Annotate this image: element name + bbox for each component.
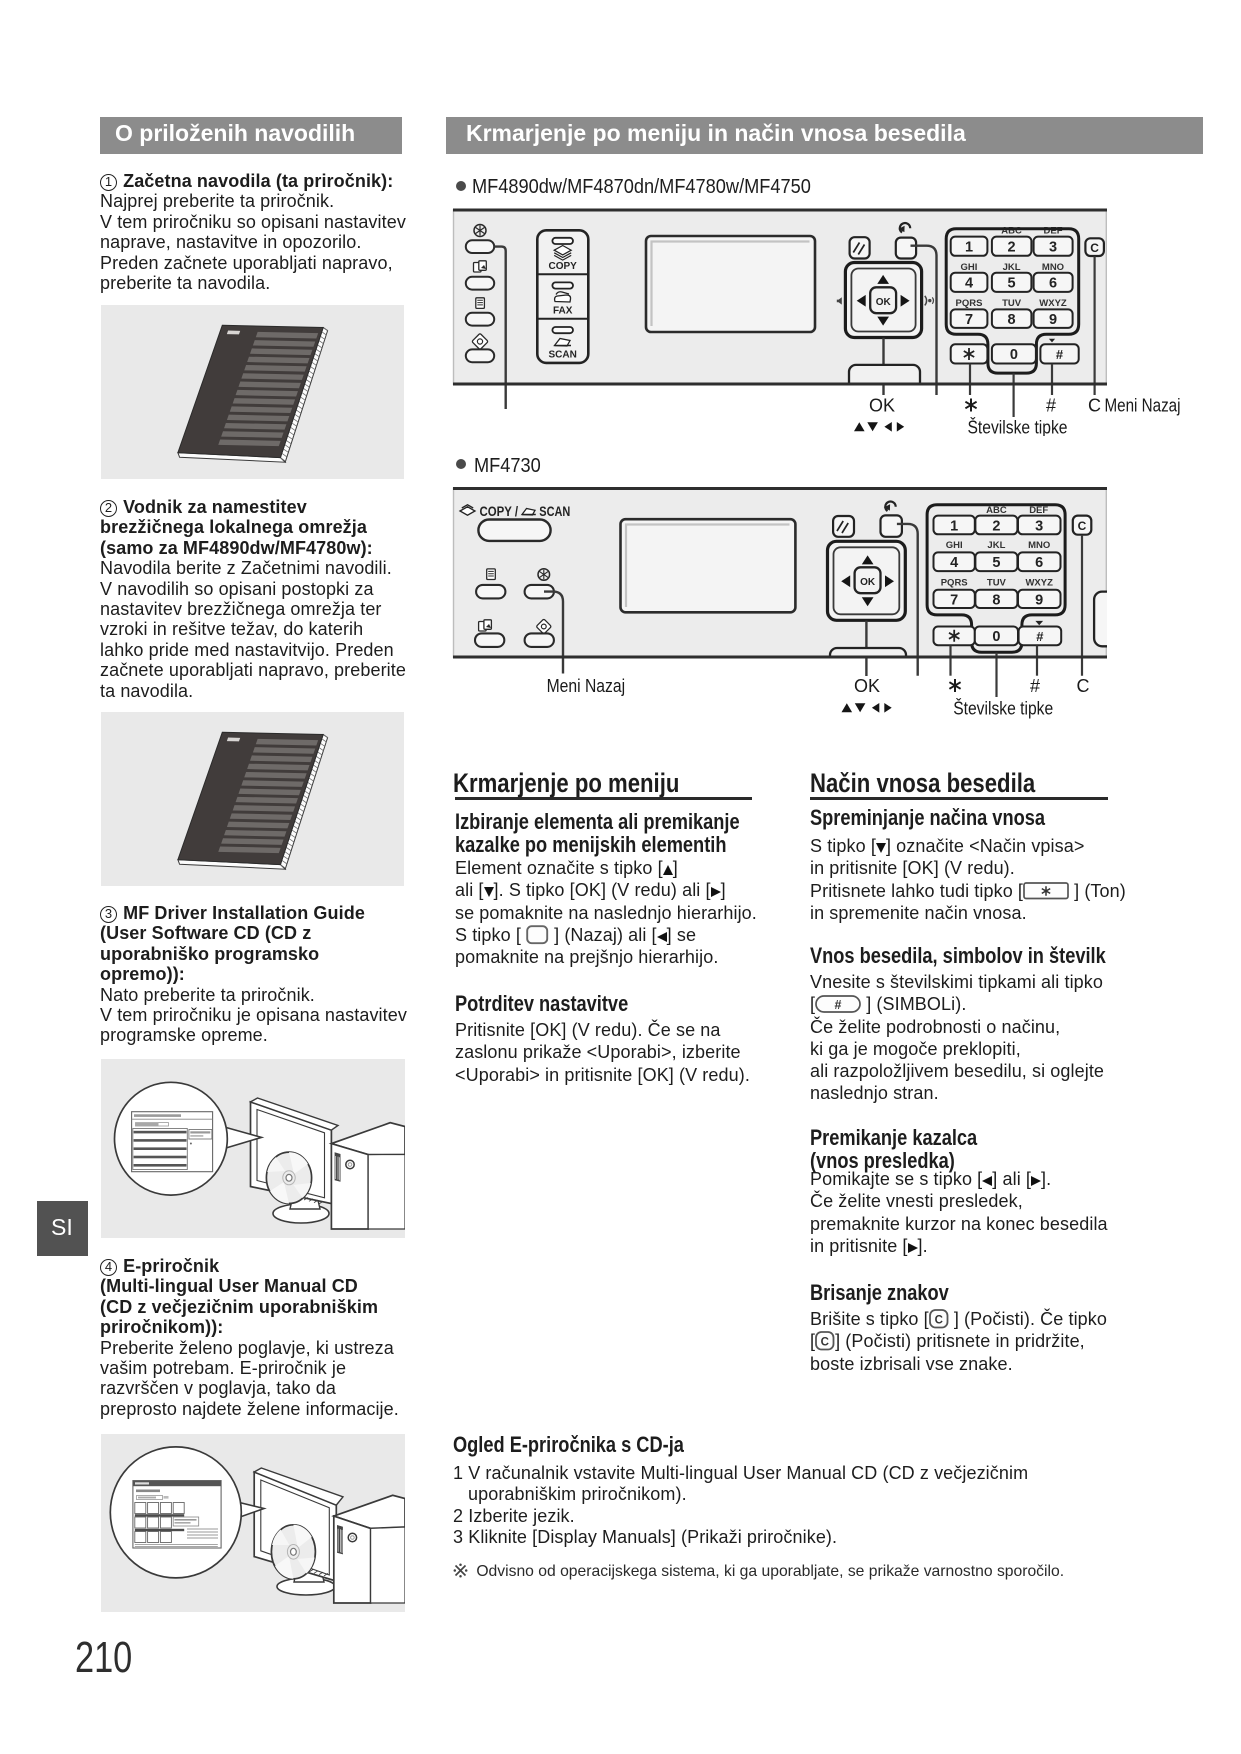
svg-text:Številske tipke: Številske tipke	[953, 698, 1053, 719]
svg-text:SCAN: SCAN	[539, 504, 570, 519]
svg-text:#: #	[1030, 676, 1040, 696]
svg-text:8: 8	[1008, 312, 1016, 328]
svg-text:6: 6	[1035, 555, 1043, 571]
svg-text:DEF: DEF	[1029, 505, 1048, 516]
svg-text:2: 2	[992, 518, 1000, 534]
svg-text:Meni Nazaj: Meni Nazaj	[1105, 396, 1181, 416]
svg-text:SCAN: SCAN	[549, 350, 577, 361]
svg-text:7: 7	[965, 312, 973, 328]
svg-text:#: #	[1056, 347, 1064, 362]
svg-text:6: 6	[1049, 276, 1057, 292]
svg-text:C: C	[1090, 241, 1099, 255]
svg-text:WXYZ: WXYZ	[1025, 577, 1053, 588]
svg-text:C: C	[1088, 396, 1101, 416]
svg-text:TUV: TUV	[1002, 298, 1022, 309]
svg-text:WXYZ: WXYZ	[1039, 298, 1067, 309]
svg-text:0: 0	[1010, 347, 1018, 363]
svg-text:OK: OK	[869, 396, 895, 416]
svg-text:5: 5	[992, 555, 1000, 571]
svg-text:OK: OK	[854, 676, 880, 696]
svg-text:COPY: COPY	[549, 261, 578, 272]
svg-text:Meni Nazaj: Meni Nazaj	[547, 676, 626, 696]
svg-text:PQRS: PQRS	[956, 298, 983, 309]
svg-text:FAX: FAX	[553, 305, 573, 316]
svg-text:4: 4	[965, 276, 973, 292]
svg-text:3: 3	[1035, 518, 1043, 534]
svg-text:#: #	[1046, 396, 1056, 416]
svg-text:COPY /: COPY /	[480, 504, 519, 519]
svg-text:MNO: MNO	[1028, 540, 1050, 551]
svg-text:8: 8	[992, 592, 1000, 608]
svg-text:OK: OK	[860, 577, 876, 588]
svg-text:PQRS: PQRS	[941, 577, 968, 588]
svg-text:C: C	[1077, 676, 1090, 696]
svg-text:GHI: GHI	[946, 540, 963, 551]
svg-text:5: 5	[1008, 276, 1016, 292]
svg-text:1: 1	[950, 518, 958, 534]
svg-text:7: 7	[950, 592, 958, 608]
svg-text:9: 9	[1049, 312, 1057, 328]
svg-text:#: #	[1036, 629, 1044, 644]
svg-text:ABC: ABC	[986, 505, 1007, 516]
svg-text:C: C	[934, 1314, 942, 1326]
svg-text:C: C	[1078, 519, 1087, 533]
svg-text:Številske tipke: Številske tipke	[968, 417, 1068, 437]
svg-text:9: 9	[1035, 592, 1043, 608]
svg-text:GHI: GHI	[961, 262, 978, 273]
svg-text:2: 2	[1008, 240, 1016, 256]
svg-text:1: 1	[965, 240, 973, 256]
svg-text:4: 4	[950, 555, 958, 571]
svg-text:JKL: JKL	[987, 540, 1005, 551]
svg-text:TUV: TUV	[987, 577, 1007, 588]
svg-text:#: #	[835, 998, 842, 1012]
svg-text:JKL: JKL	[1003, 262, 1021, 273]
svg-text:0: 0	[992, 629, 1000, 645]
svg-text:C: C	[821, 1337, 829, 1349]
svg-text:3: 3	[1049, 240, 1057, 256]
svg-text:MNO: MNO	[1042, 262, 1064, 273]
svg-text:OK: OK	[876, 297, 892, 308]
